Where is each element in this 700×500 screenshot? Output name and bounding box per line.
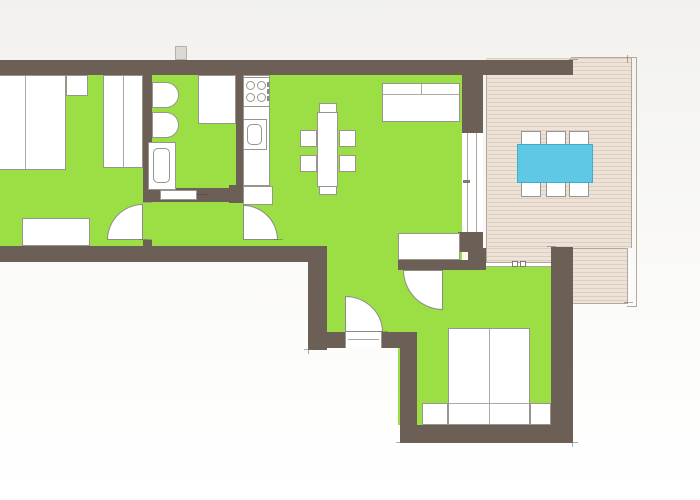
bed-pillow-line (25, 76, 26, 169)
door-sill-line (348, 339, 379, 340)
corner-tick (396, 442, 405, 443)
stove-burner (246, 93, 255, 102)
wall-living-east-upper (462, 75, 483, 133)
door-jamb (381, 332, 382, 348)
bedroom1-double-bed (0, 75, 66, 170)
deck-lower-top-edge (573, 248, 628, 249)
bedroom2-double-bed (448, 328, 530, 425)
stove-burner (257, 93, 266, 102)
wardrobe-divider-line (123, 76, 124, 167)
door-jamb (143, 202, 152, 203)
kitchen-sink (243, 119, 267, 150)
fridge (243, 186, 273, 205)
deck-floor-lower (573, 248, 628, 303)
deck-floor-strip (486, 248, 551, 262)
sliding-door-panel (160, 190, 197, 200)
bedroom1-nightstand (66, 75, 88, 96)
wall-bedroom2-south (400, 425, 573, 443)
floor-plan (0, 0, 700, 500)
stove-burner (257, 81, 266, 90)
deck-lower-bottom-edge (573, 303, 628, 304)
window-handle-mark (512, 261, 518, 267)
stove-knobs (267, 89, 269, 94)
toilet (152, 82, 179, 108)
bed-mattress-divider (489, 329, 490, 424)
sofa (382, 83, 460, 122)
wall-south-main (0, 246, 310, 262)
corner-tick (569, 59, 578, 60)
deck-lower-right-edge (627, 248, 628, 303)
wall-bedroom2-east (551, 247, 573, 443)
corner-tick (274, 239, 283, 240)
stove-knobs (267, 96, 269, 101)
dining-table (317, 112, 338, 187)
dining-chair (339, 155, 356, 172)
sink-basin (247, 124, 262, 145)
bedroom2-window (486, 262, 551, 267)
washbasin-bowl (153, 148, 170, 183)
dining-chair (300, 130, 317, 147)
glass-door-handle (463, 180, 470, 183)
corner-tick (547, 246, 556, 247)
stove (243, 77, 270, 107)
shower (198, 75, 236, 124)
corner-tick (627, 55, 628, 63)
deck-offset-bottom (627, 306, 637, 307)
chimney-mark (175, 46, 187, 60)
dining-chair (300, 155, 317, 172)
deck-offset-right (636, 57, 637, 306)
bedroom2-nightstand-right (530, 403, 551, 425)
glass-door-pane-line (476, 133, 477, 232)
corner-tick (572, 438, 573, 447)
corner-tick (624, 302, 633, 303)
sofa-cushion-line (421, 84, 422, 94)
bedroom1-wardrobe (103, 75, 143, 168)
corner-tick (139, 239, 148, 240)
corner-tick (308, 345, 309, 354)
bedroom1-dresser (22, 218, 90, 246)
wall-step-vertical (308, 246, 327, 350)
sliding-door-track (197, 194, 209, 195)
window-handle-mark (520, 261, 526, 267)
deck-edge-left (486, 75, 487, 262)
deck-edge-right (631, 57, 632, 248)
wall-corner-step-pier (468, 248, 486, 266)
wall-north (0, 60, 573, 75)
corner-tick (569, 442, 578, 443)
bedroom2-nightstand-left (422, 403, 448, 425)
dining-chair (339, 130, 356, 147)
corner-tick (379, 331, 388, 332)
bidet (152, 112, 179, 138)
sofa-backrest-line (383, 94, 459, 95)
stove-knobs (267, 82, 269, 87)
outdoor-table (517, 144, 593, 183)
bed-pillow-line (449, 403, 529, 404)
stove-burner (246, 81, 255, 90)
wall-bathroom-east (236, 60, 243, 188)
door-jamb (345, 332, 346, 348)
washbasin-vanity (148, 142, 176, 190)
sideboard (398, 233, 460, 260)
hall-south-door-opening (345, 332, 382, 348)
